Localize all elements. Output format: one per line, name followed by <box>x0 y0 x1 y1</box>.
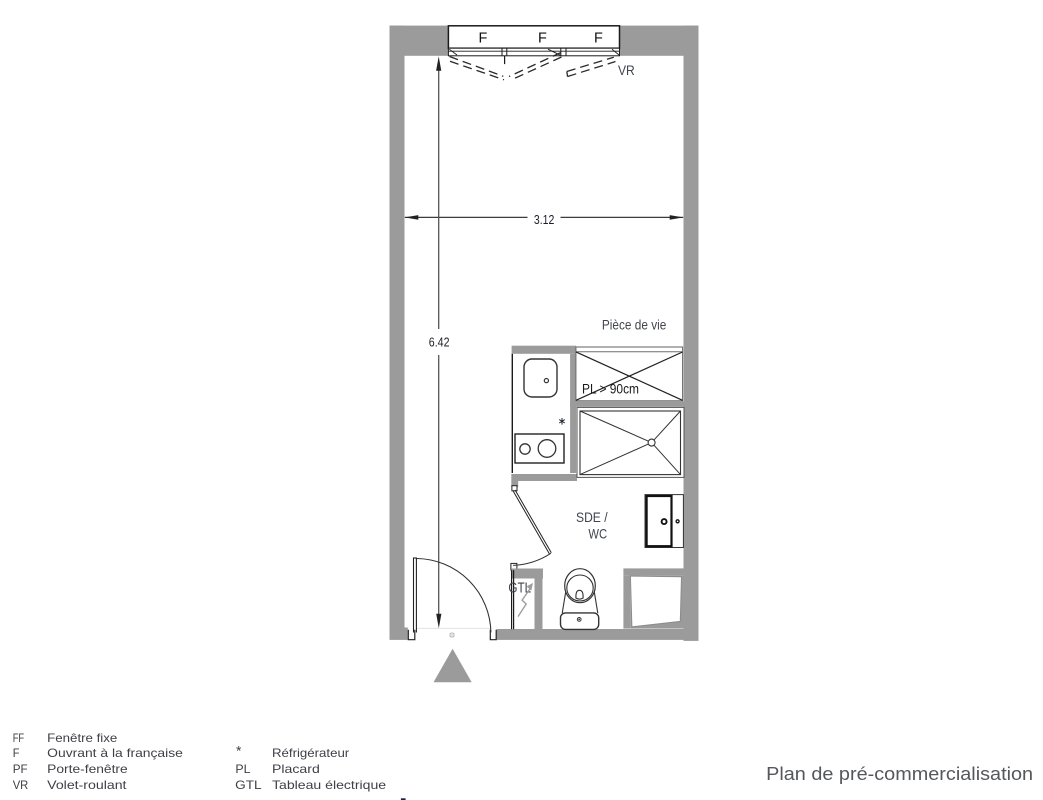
svg-text:VR: VR <box>618 63 635 78</box>
svg-text:Volet-roulant: Volet-roulant <box>47 778 127 792</box>
svg-text:F: F <box>13 746 20 760</box>
svg-text:Plan de pré-commercialisation: Plan de pré-commercialisation <box>766 763 1033 784</box>
svg-text:PL: PL <box>235 762 250 776</box>
svg-text:*: * <box>236 743 242 759</box>
svg-text:Tableau électrique: Tableau électrique <box>272 778 386 792</box>
svg-text:6.42: 6.42 <box>429 335 450 350</box>
svg-text:Porte-fenêtre: Porte-fenêtre <box>47 762 128 776</box>
svg-text:VR: VR <box>13 778 29 792</box>
svg-text:F: F <box>594 30 603 46</box>
svg-text:GTL: GTL <box>235 778 262 792</box>
svg-text:Réfrigérateur: Réfrigérateur <box>272 746 349 760</box>
svg-text:3.12: 3.12 <box>534 212 555 227</box>
svg-text:F: F <box>538 30 547 46</box>
svg-text:FF: FF <box>13 731 25 745</box>
svg-text:Pièce de vie: Pièce de vie <box>602 317 667 333</box>
svg-text:F: F <box>479 30 488 46</box>
svg-text:PL > 90cm: PL > 90cm <box>582 380 639 396</box>
svg-text:Fenêtre fixe: Fenêtre fixe <box>47 731 117 745</box>
svg-text:PF: PF <box>13 762 28 776</box>
svg-text:GTL: GTL <box>508 581 531 597</box>
svg-text:WC: WC <box>588 526 607 542</box>
svg-text:Ouvrant à la française: Ouvrant à la française <box>47 746 183 760</box>
svg-text:Placard: Placard <box>272 762 320 776</box>
svg-text:SDE /: SDE / <box>576 509 608 525</box>
